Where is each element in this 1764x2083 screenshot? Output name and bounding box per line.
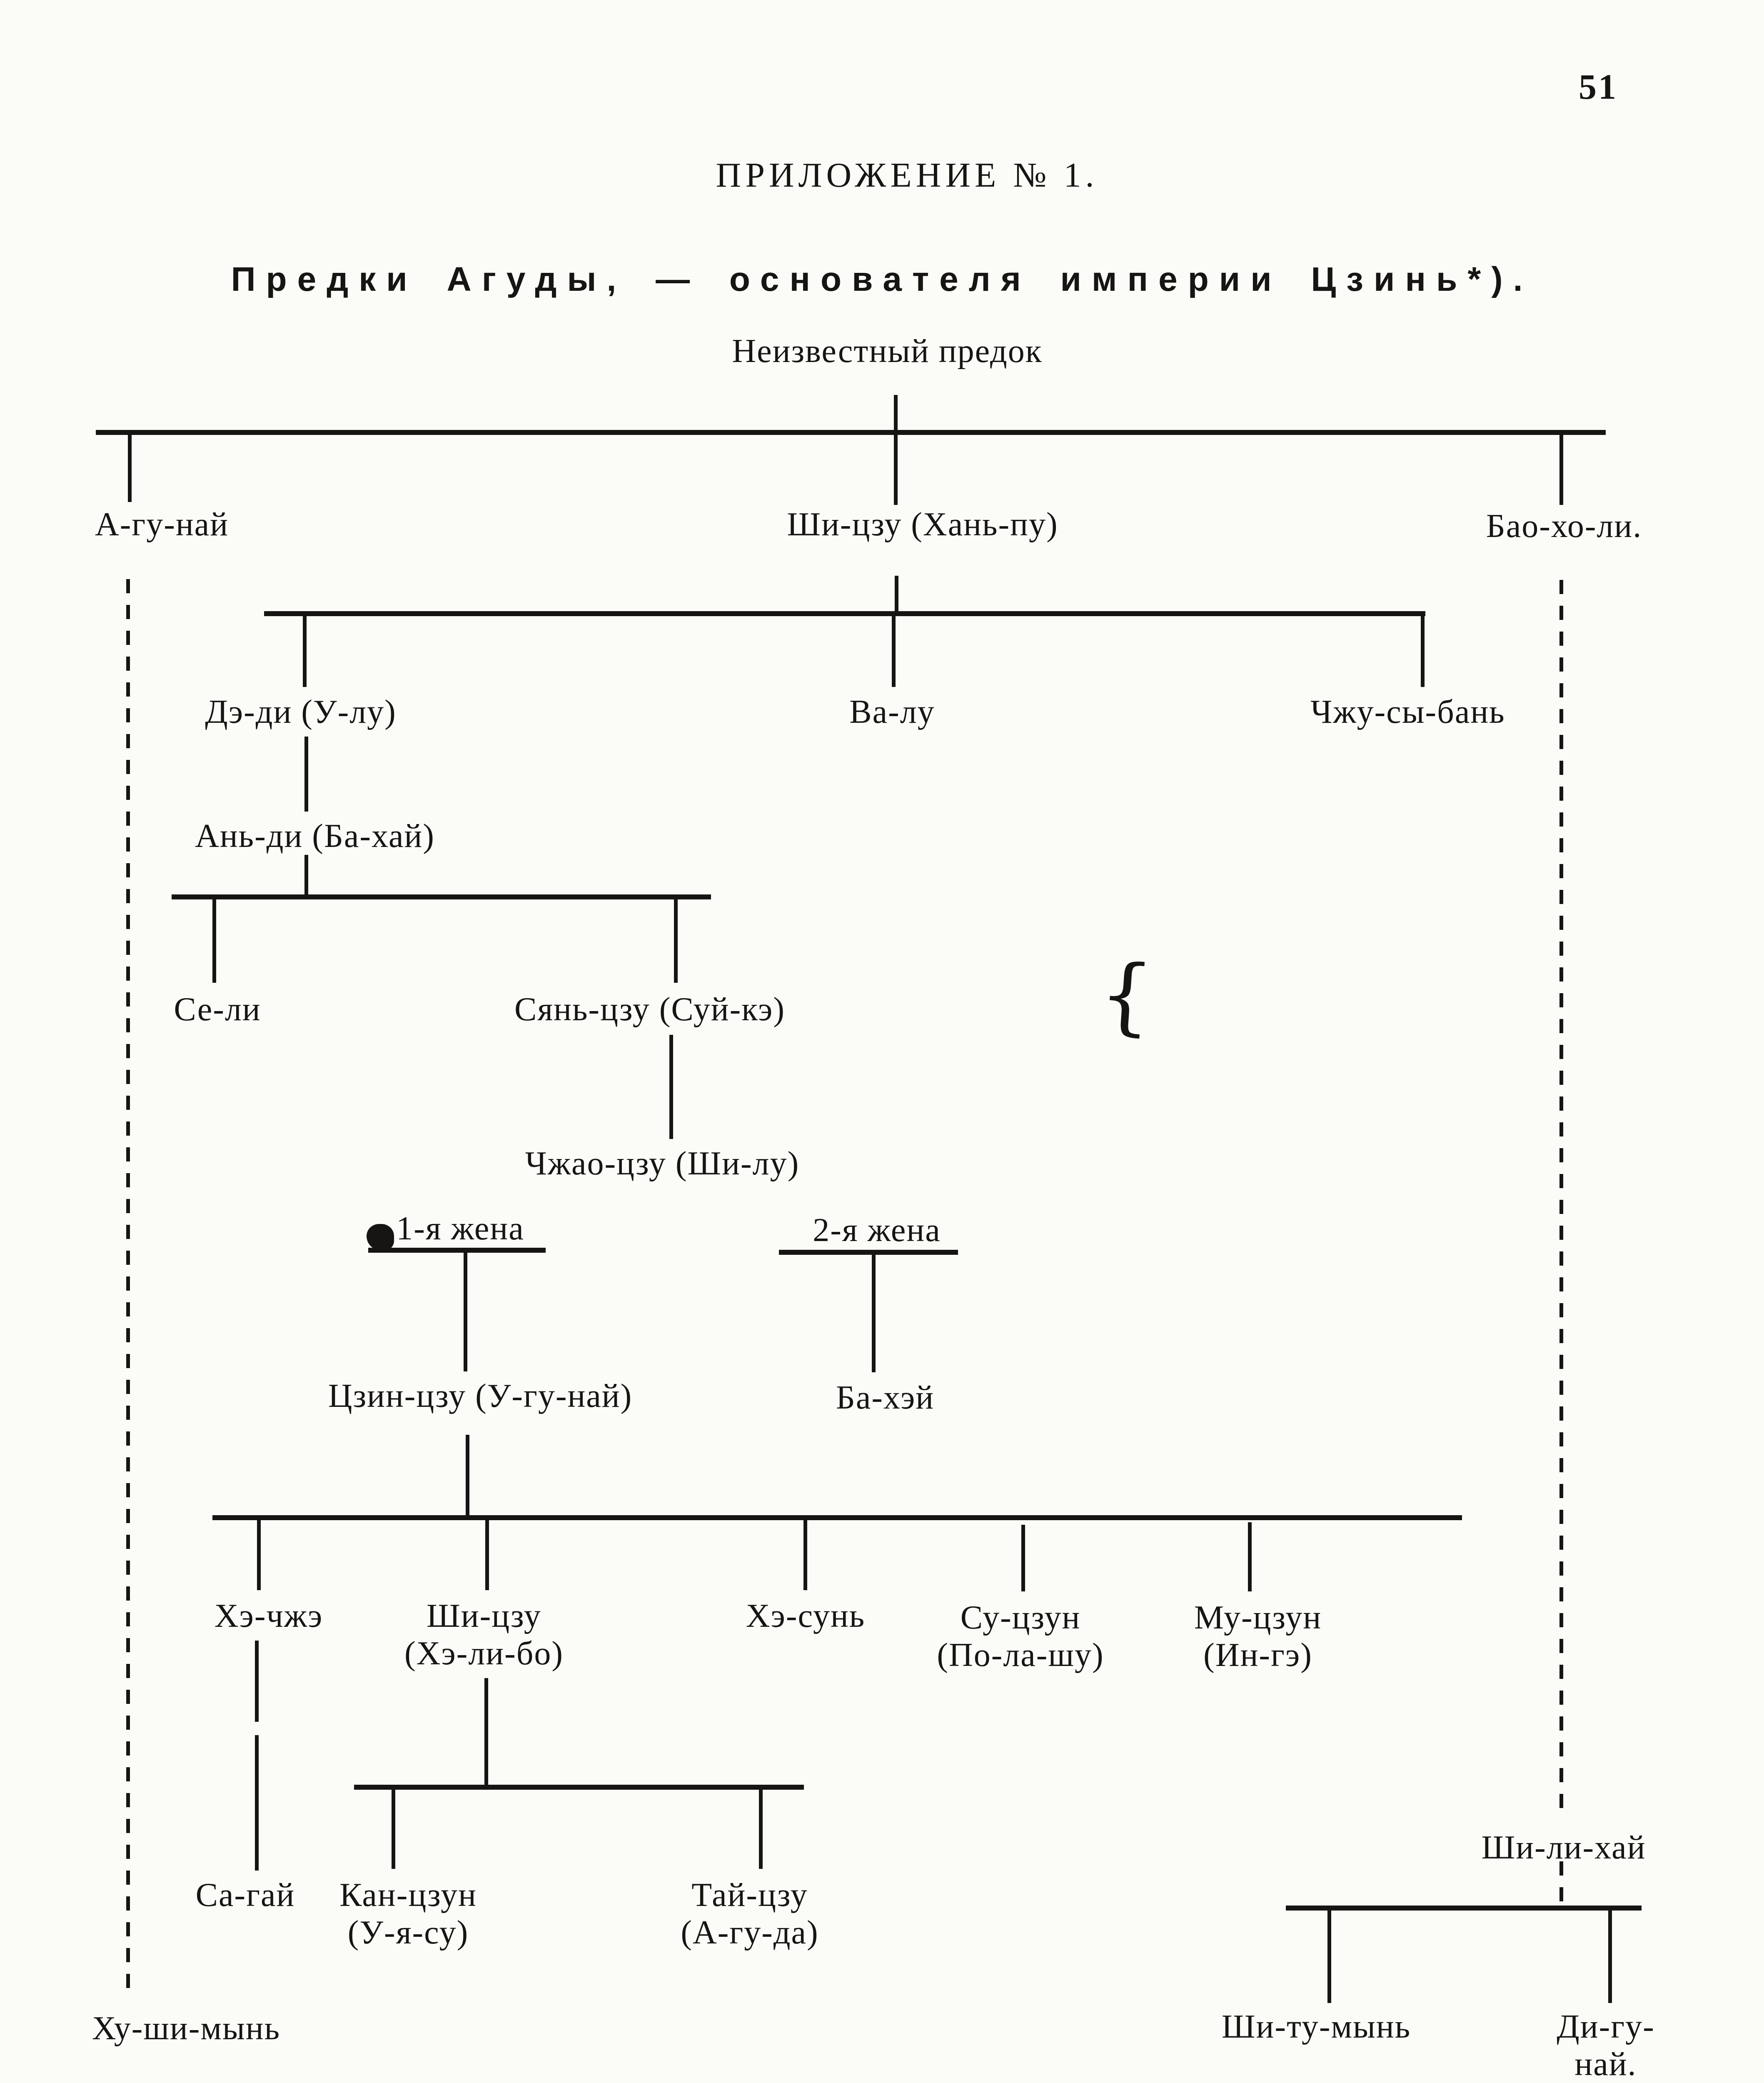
connector-gen5-t4 <box>1021 1525 1025 1591</box>
connector-he-li-bo-drop <box>484 1678 488 1786</box>
connector-gen3-right <box>674 899 678 983</box>
tree-node-shi-tszu-han-pu: Ши-цзу (Хань-пу) <box>787 506 1058 543</box>
connector-gen2-right <box>1421 616 1425 687</box>
connector-dotted-bao-ho-li-to-shi-li-hai <box>1559 580 1563 1820</box>
connector-gen5-t3 <box>803 1520 807 1590</box>
connector-root-drop <box>894 395 898 433</box>
connector-de-di-drop <box>304 737 308 812</box>
tree-node-hu-shi-myn: Ху-ши-мынь <box>92 2010 280 2047</box>
connector-gen6-left <box>392 1790 395 1869</box>
tree-node-ba-hei: Ба-хэй <box>836 1379 934 1416</box>
tree-node-a-gu-nai: А-гу-най <box>95 506 229 543</box>
connector-gen6r-rail <box>1286 1906 1642 1911</box>
connector-shi-tszu-drop <box>895 576 898 614</box>
connector-gen1-right <box>1559 434 1563 505</box>
tree-node-mu-tszun-in-ge: Му-цзун (Ин-гэ) <box>1194 1599 1322 1674</box>
ink-blob <box>367 1224 394 1251</box>
connector-gen5-t5 <box>1248 1522 1252 1591</box>
tree-node-di-gu-nai: Ди-гу-най. <box>1527 2008 1685 2083</box>
tree-node-se-li: Се-ли <box>174 991 261 1028</box>
wife-1-underline <box>368 1248 546 1253</box>
connector-gen6r-right <box>1608 1911 1612 2003</box>
tree-node-tai-tszu-a-gu-da: Тай-цзу (А-гу-да) <box>681 1876 818 1951</box>
connector-gen6-right <box>759 1790 763 1869</box>
connector-tszin-tszu-drop <box>466 1435 469 1515</box>
tree-node-shi-tszu-he-li-bo: Ши-цзу (Хэ-ли-бо) <box>404 1597 564 1672</box>
tree-node-an-di-ba-hai: Ань-ди (Ба-хай) <box>195 817 435 855</box>
connector-gen3-rail <box>172 894 711 899</box>
connector-an-di-drop <box>304 855 308 897</box>
connector-dotted-a-gu-nai-to-hu-shi-myn <box>126 579 130 2000</box>
connector-gen5-rail <box>212 1515 1462 1520</box>
page-title: Предки Агуды, — основателя империи Цзинь… <box>0 260 1764 299</box>
connector-gen1-left <box>128 434 132 502</box>
tree-node-va-lu: Ва-лу <box>849 693 935 731</box>
connector-gen3-left <box>212 899 216 983</box>
tree-node-sa-gai: Са-гай <box>196 1876 295 1914</box>
tree-node-unknown-ancestor: Неизвестный предок <box>732 332 1042 370</box>
tree-node-syan-tszu-sui-ke: Сянь-цзу (Суй-кэ) <box>514 991 785 1028</box>
connector-dotted-shi-li-hai-drop <box>1559 1861 1563 1908</box>
tree-node-shi-tu-myn: Ши-ту-мынь <box>1222 2008 1411 2046</box>
connector-gen1-rail <box>96 430 1606 435</box>
page-number: 51 <box>1579 66 1687 107</box>
tree-node-chzhu-sy-ban: Чжу-сы-бань <box>1310 693 1505 731</box>
connector-gen1-center <box>894 434 898 505</box>
connector-gen6r-left <box>1327 1911 1331 2003</box>
connector-gen5-t2 <box>485 1520 489 1590</box>
tree-node-bao-ho-li: Бао-хо-ли. <box>1486 507 1642 545</box>
connector-gen2-left <box>303 616 307 687</box>
tree-node-kan-tszun-u-ya-su: Кан-цзун (У-я-су) <box>339 1876 477 1951</box>
tree-node-wife-2: 2-я жена <box>813 1211 941 1249</box>
ink-artifact-brace: { <box>1097 952 1155 1039</box>
tree-node-he-chzhe: Хэ-чжэ <box>215 1597 323 1635</box>
connector-gen2-center <box>892 616 896 687</box>
connector-he-chzhe-drop-b <box>255 1735 259 1871</box>
tree-node-shi-li-hai: Ши-ли-хай <box>1482 1829 1646 1866</box>
appendix-heading: ПРИЛОЖЕНИЕ № 1. <box>0 155 1764 195</box>
connector-gen6-rail <box>354 1785 804 1790</box>
connector-he-chzhe-drop-a <box>255 1641 259 1722</box>
tree-node-chzhao-tszu-shi-lu: Чжао-цзу (Ши-лу) <box>525 1145 799 1182</box>
tree-node-de-di-u-lu: Дэ-ди (У-лу) <box>205 693 397 731</box>
connector-gen5-t1 <box>257 1520 261 1590</box>
connector-wife-1-drop <box>464 1253 467 1371</box>
tree-node-su-tszun-po-la-shu: Су-цзун (По-ла-шу) <box>937 1599 1104 1674</box>
wife-2-underline <box>779 1250 958 1255</box>
tree-node-wife-1: 1-я жена <box>396 1210 524 1247</box>
tree-node-he-sun: Хэ-сунь <box>746 1597 866 1635</box>
scanned-book-page: { "page": { "number": "51", "heading": "… <box>0 0 1764 2083</box>
connector-syan-tszu-drop <box>669 1035 673 1139</box>
tree-node-tszin-tszu-u-gu-nai: Цзин-цзу (У-гу-най) <box>328 1377 633 1415</box>
connector-gen2-rail <box>264 611 1425 616</box>
connector-wife-2-drop <box>872 1255 876 1372</box>
